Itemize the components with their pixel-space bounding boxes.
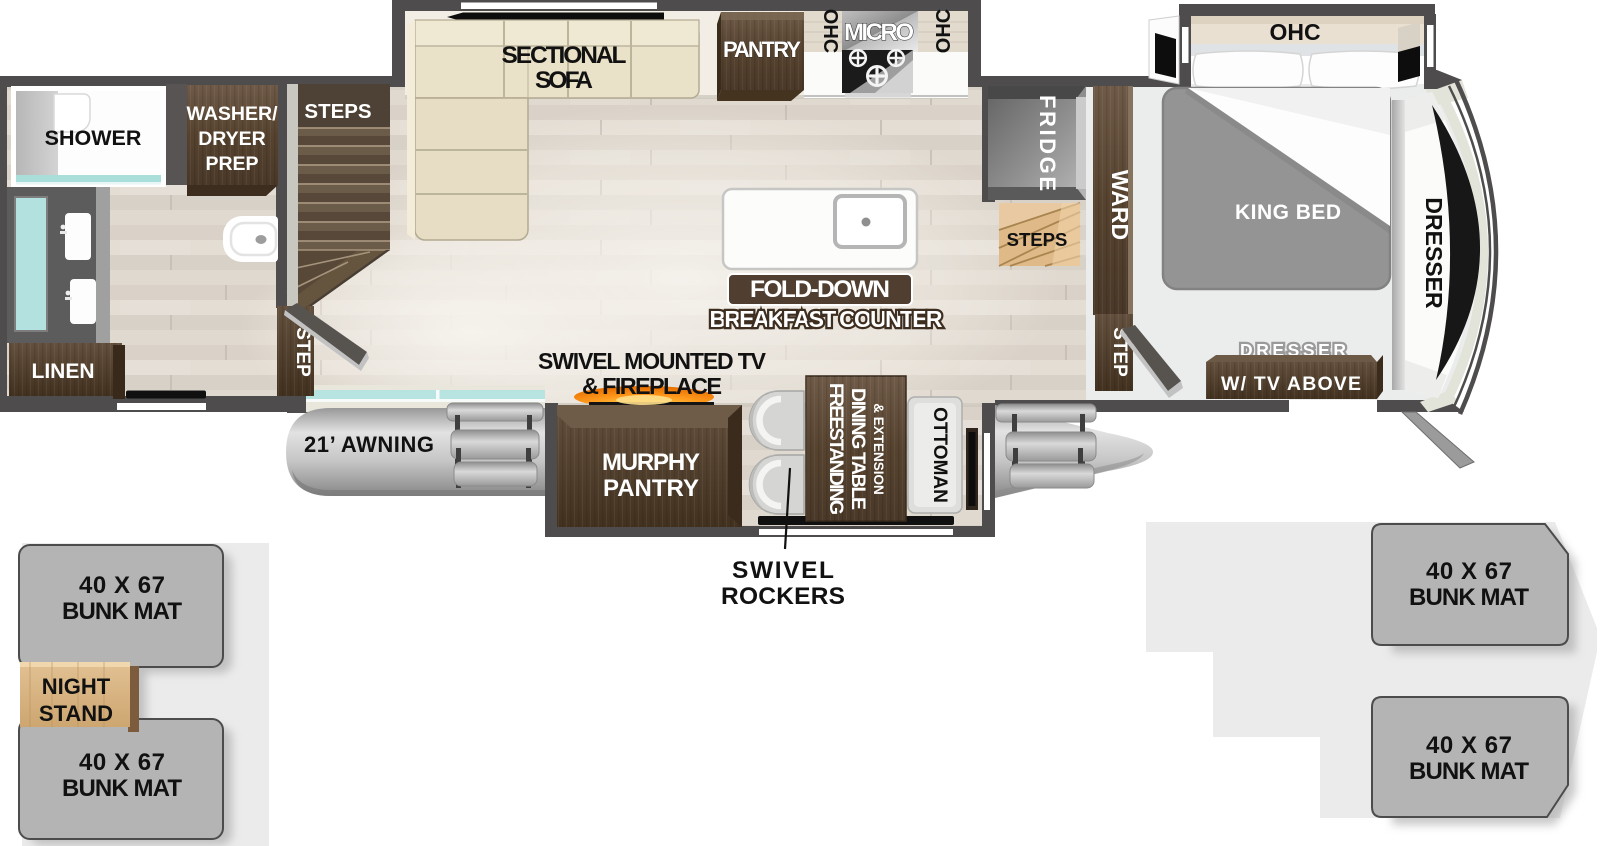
svg-text:40 X 67: 40 X 67: [79, 572, 165, 599]
svg-text:40 X 67: 40 X 67: [79, 749, 165, 776]
svg-text:BUNK MAT: BUNK MAT: [62, 775, 182, 802]
svg-text:40 X 67: 40 X 67: [1426, 732, 1512, 759]
svg-text:W/ TV ABOVE: W/ TV ABOVE: [1221, 373, 1361, 395]
svg-text:OTTOMAN: OTTOMAN: [929, 407, 950, 503]
svg-text:BUNK MAT: BUNK MAT: [1409, 584, 1529, 611]
svg-text:FOLD-DOWN: FOLD-DOWN: [750, 276, 890, 303]
svg-text:DRESSER: DRESSER: [1421, 197, 1447, 309]
svg-text:SOFA: SOFA: [535, 67, 593, 94]
svg-text:OHC: OHC: [819, 9, 841, 53]
svg-text:21’ AWNING: 21’ AWNING: [304, 432, 434, 457]
svg-text:FREESTANDING: FREESTANDING: [825, 383, 847, 515]
svg-text:LINEN: LINEN: [32, 360, 95, 383]
svg-text:PANTRY: PANTRY: [723, 37, 801, 62]
svg-text:PREP: PREP: [205, 153, 258, 175]
svg-text:BUNK MAT: BUNK MAT: [62, 598, 182, 625]
svg-text:ROCKERS: ROCKERS: [721, 583, 845, 610]
svg-text:BREAKFAST COUNTER: BREAKFAST COUNTER: [710, 306, 943, 332]
svg-text:40 X 67: 40 X 67: [1426, 558, 1512, 585]
svg-text:BUNK MAT: BUNK MAT: [1409, 758, 1529, 785]
svg-text:MICRO: MICRO: [844, 19, 914, 46]
svg-text:KING BED: KING BED: [1235, 201, 1341, 224]
svg-text:STEP: STEP: [292, 327, 313, 377]
svg-text:PANTRY: PANTRY: [603, 475, 699, 502]
svg-text:STEPS: STEPS: [304, 100, 371, 123]
svg-text:MURPHY: MURPHY: [602, 449, 700, 476]
svg-text:WARD: WARD: [1107, 170, 1133, 240]
svg-text:NIGHT: NIGHT: [42, 674, 111, 699]
svg-text:OHC: OHC: [1269, 19, 1320, 45]
svg-text:STAND: STAND: [39, 701, 113, 726]
svg-text:& EXTENSION: & EXTENSION: [871, 403, 886, 495]
svg-text:SECTIONAL: SECTIONAL: [502, 42, 627, 69]
svg-text:& FIREPLACE: & FIREPLACE: [582, 373, 722, 399]
svg-text:OHC: OHC: [933, 9, 955, 53]
svg-text:WASHER/: WASHER/: [186, 103, 278, 125]
svg-text:DINING TABLE: DINING TABLE: [847, 388, 869, 510]
svg-text:SWIVEL MOUNTED TV: SWIVEL MOUNTED TV: [538, 348, 767, 374]
svg-text:SWIVEL: SWIVEL: [732, 557, 834, 584]
svg-text:SHOWER: SHOWER: [45, 126, 142, 150]
svg-text:DRYER: DRYER: [198, 128, 266, 150]
svg-text:STEPS: STEPS: [1007, 229, 1068, 250]
